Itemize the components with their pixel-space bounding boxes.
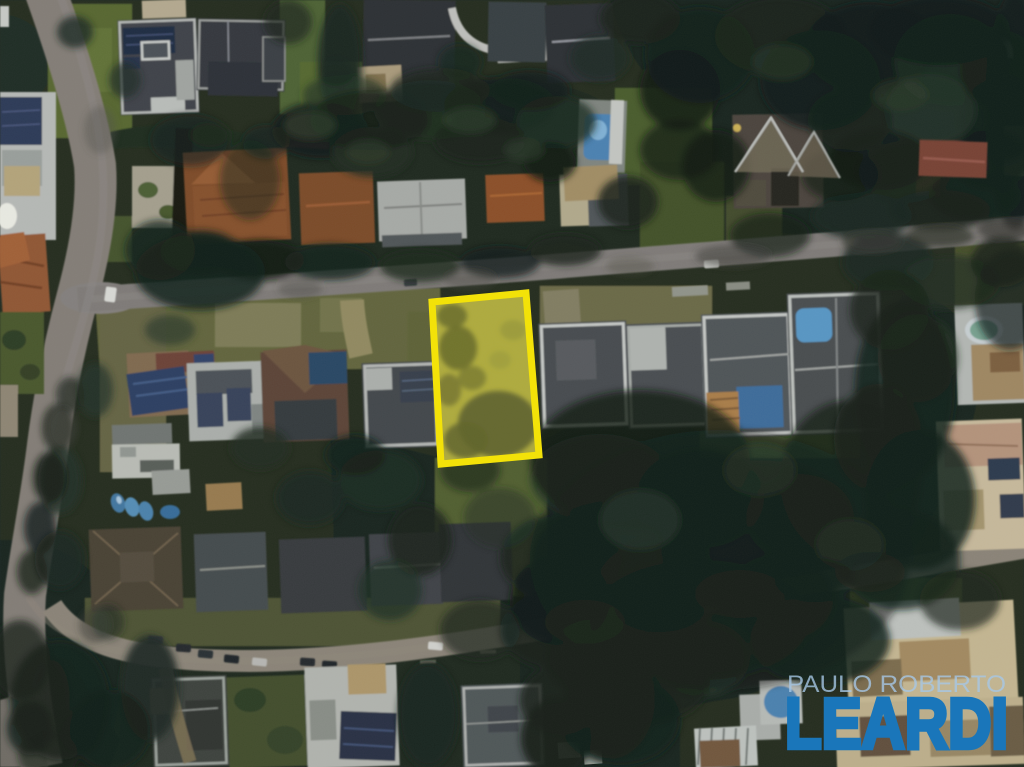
svg-text:LEARDI: LEARDI bbox=[785, 685, 1008, 764]
